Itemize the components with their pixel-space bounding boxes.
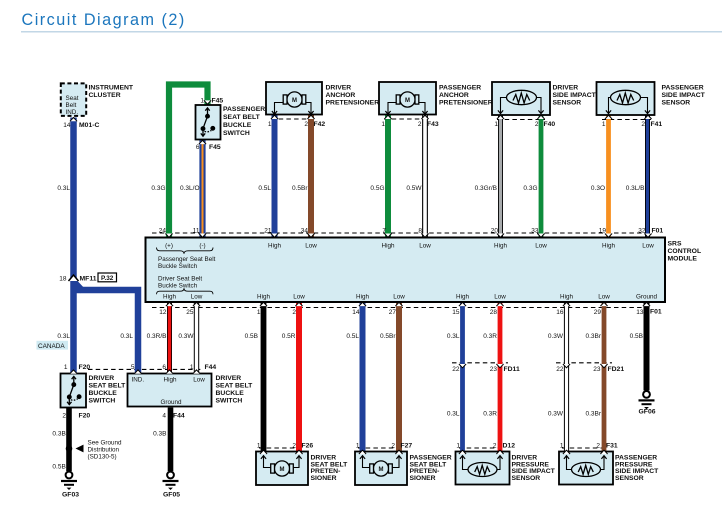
svg-text:High: High [257,293,270,300]
svg-text:0.3B: 0.3B [153,431,166,438]
svg-text:2: 2 [62,413,66,420]
svg-text:F27: F27 [401,442,413,449]
svg-text:8: 8 [418,228,422,235]
svg-text:2: 2 [292,442,296,449]
svg-text:MF11: MF11 [80,276,97,283]
svg-text:GF06: GF06 [639,409,656,416]
svg-text:SWITCH: SWITCH [216,398,243,405]
svg-text:29: 29 [594,309,602,316]
svg-text:High: High [456,293,469,300]
svg-text:15: 15 [452,309,460,316]
svg-text:0.3G: 0.3G [523,185,537,192]
svg-text:19: 19 [599,228,607,235]
svg-text:M: M [280,467,285,473]
svg-text:SEAT BELT: SEAT BELT [223,114,261,121]
svg-text:ANCHOR: ANCHOR [439,92,469,99]
svg-text:Ground: Ground [636,293,658,300]
svg-text:0.3L: 0.3L [57,185,70,192]
svg-text:IND.: IND. [66,109,79,116]
svg-text:SIDE IMPACT: SIDE IMPACT [662,92,706,99]
svg-text:Buckle Switch: Buckle Switch [158,283,198,290]
svg-text:F43: F43 [427,121,439,128]
svg-text:1: 1 [257,442,261,449]
svg-text:1: 1 [381,121,385,128]
svg-text:Belt: Belt [66,102,77,109]
svg-text:SIDE IMPACT: SIDE IMPACT [553,92,597,99]
svg-text:SEAT BELT: SEAT BELT [89,383,127,390]
svg-text:0.5B: 0.5B [52,464,65,471]
svg-text:M01-C: M01-C [79,122,99,129]
svg-text:BUCKLE: BUCKLE [89,390,118,397]
svg-text:0.3L: 0.3L [447,411,460,418]
svg-text:0.3L: 0.3L [447,333,460,340]
svg-text:High: High [164,376,177,383]
svg-text:Ground: Ground [160,399,182,406]
svg-text:0.3R: 0.3R [483,333,497,340]
svg-text:SIONER: SIONER [311,475,337,482]
svg-text:0.3Gr/B: 0.3Gr/B [475,185,497,192]
svg-text:F26: F26 [302,442,314,449]
svg-text:0.5G: 0.5G [370,185,384,192]
svg-text:PASSENGER: PASSENGER [662,85,704,92]
svg-text:21: 21 [264,228,272,235]
svg-text:High: High [356,293,369,300]
svg-text:F01: F01 [652,228,664,235]
svg-text:Passenger Seat Belt: Passenger Seat Belt [158,256,216,263]
svg-text:FD21: FD21 [608,366,625,373]
svg-text:Low: Low [305,242,317,249]
svg-text:0.5Br: 0.5Br [292,185,308,192]
svg-text:F31: F31 [606,442,618,449]
svg-text:SENSOR: SENSOR [553,100,582,107]
svg-text:18: 18 [59,276,67,283]
svg-text:SENSOR: SENSOR [662,100,691,107]
svg-text:Low: Low [494,293,506,300]
svg-text:Low: Low [642,242,654,249]
svg-text:SWITCH: SWITCH [89,398,116,405]
svg-text:0.3B: 0.3B [52,431,65,438]
svg-text:DRIVER: DRIVER [553,85,579,92]
svg-text:2: 2 [596,442,600,449]
svg-text:0.3O: 0.3O [591,185,605,192]
svg-text:High: High [494,242,507,249]
svg-text:0.3L/B: 0.3L/B [626,185,645,192]
svg-text:22: 22 [556,366,564,373]
svg-text:2: 2 [304,121,308,128]
svg-text:1: 1 [64,364,68,371]
svg-text:2: 2 [292,309,296,316]
svg-text:Low: Low [193,376,205,383]
svg-text:1: 1 [494,121,498,128]
svg-text:Low: Low [598,293,610,300]
svg-text:23: 23 [490,366,498,373]
svg-text:High: High [602,242,615,249]
svg-text:32: 32 [638,228,646,235]
svg-text:Seat: Seat [66,95,79,102]
svg-text:PASSENGER: PASSENGER [223,106,265,113]
svg-text:0.3W: 0.3W [178,333,194,340]
svg-text:25: 25 [186,309,194,316]
svg-text:SENSOR: SENSOR [615,475,644,482]
svg-text:CONTROL: CONTROL [668,248,702,255]
svg-text:Buckle Switch: Buckle Switch [158,263,198,270]
svg-text:Driver Seat Belt: Driver Seat Belt [158,276,202,283]
svg-text:Distribution: Distribution [88,447,120,454]
svg-text:4: 4 [162,413,166,420]
svg-text:0.5L: 0.5L [258,185,271,192]
svg-text:7: 7 [382,228,386,235]
svg-text:2: 2 [493,442,497,449]
svg-text:(-): (-) [199,242,205,249]
svg-text:0.5R: 0.5R [282,333,296,340]
svg-text:0.5L: 0.5L [346,333,359,340]
svg-text:IND.: IND. [132,376,145,383]
svg-text:DRIVER: DRIVER [326,85,352,92]
svg-text:High: High [560,293,573,300]
svg-text:M: M [292,98,297,104]
svg-text:1: 1 [257,309,261,316]
svg-text:5: 5 [131,364,135,371]
svg-text:SIONER: SIONER [410,475,436,482]
svg-text:1: 1 [456,442,460,449]
svg-text:MODULE: MODULE [668,255,698,262]
svg-text:F42: F42 [314,121,326,128]
svg-text:M: M [405,98,410,104]
svg-text:14: 14 [63,122,71,129]
svg-text:0.3W: 0.3W [548,333,564,340]
svg-text:0.3L: 0.3L [120,333,133,340]
svg-text:28: 28 [490,309,498,316]
svg-text:High: High [382,242,395,249]
svg-text:F40: F40 [544,121,556,128]
svg-text:Low: Low [535,242,547,249]
svg-text:PRETENSIONER: PRETENSIONER [326,100,380,107]
svg-text:0.5Br: 0.5Br [380,333,396,340]
svg-text:20: 20 [491,228,499,235]
svg-text:1: 1 [356,442,360,449]
svg-text:1: 1 [268,121,272,128]
svg-text:F45: F45 [212,98,224,105]
svg-text:SRS: SRS [668,240,682,247]
svg-text:2: 2 [391,442,395,449]
svg-text:16: 16 [556,309,564,316]
svg-text:CLUSTER: CLUSTER [89,92,121,99]
svg-text:23: 23 [593,366,601,373]
svg-text:See Ground: See Ground [88,440,122,447]
svg-text:Low: Low [191,293,203,300]
svg-text:High: High [163,293,176,300]
svg-text:0.5B: 0.5B [630,333,643,340]
svg-text:0.5B: 0.5B [245,333,258,340]
svg-text:1: 1 [200,98,204,105]
svg-text:11: 11 [193,228,200,235]
svg-text:0.3Br: 0.3Br [585,411,601,418]
svg-text:F41: F41 [651,121,663,128]
svg-text:Circuit Diagram (2): Circuit Diagram (2) [22,11,186,29]
svg-text:GF05: GF05 [163,492,180,499]
svg-text:1: 1 [190,364,194,371]
svg-text:33: 33 [531,228,539,235]
svg-text:SEAT BELT: SEAT BELT [216,383,254,390]
svg-text:M: M [379,467,384,473]
svg-text:GF03: GF03 [62,492,79,499]
svg-text:24: 24 [159,228,167,235]
svg-text:SWITCH: SWITCH [223,130,250,137]
svg-text:34: 34 [301,228,309,235]
svg-text:2: 2 [535,121,539,128]
svg-text:12: 12 [159,309,167,316]
svg-text:CANADA: CANADA [38,343,65,350]
svg-text:(SD130-5): (SD130-5) [88,454,117,461]
svg-text:PRETENSIONER: PRETENSIONER [439,100,493,107]
svg-text:F44: F44 [205,364,217,371]
svg-text:F01: F01 [650,309,662,316]
svg-text:High: High [268,242,281,249]
svg-text:DRIVER: DRIVER [216,375,242,382]
svg-text:Low: Low [293,293,305,300]
svg-text:DRIVER: DRIVER [89,375,115,382]
svg-text:Low: Low [393,293,405,300]
svg-text:SENSOR: SENSOR [512,475,541,482]
svg-text:FD11: FD11 [504,366,520,373]
svg-text:2: 2 [641,121,645,128]
svg-text:27: 27 [389,309,397,316]
svg-text:0.5W: 0.5W [406,185,422,192]
svg-text:Low: Low [419,242,431,249]
svg-text:0.3G: 0.3G [151,185,165,192]
svg-text:INSTRUMENT: INSTRUMENT [89,85,134,92]
svg-text:PASSENGER: PASSENGER [439,85,481,92]
svg-text:2: 2 [418,121,422,128]
svg-text:6: 6 [196,144,200,151]
svg-text:0.3L: 0.3L [57,333,70,340]
svg-text:1: 1 [560,442,564,449]
svg-text:0.3R: 0.3R [483,411,497,418]
svg-text:ANCHOR: ANCHOR [326,92,356,99]
svg-text:0.3W: 0.3W [548,411,564,418]
svg-text:F20: F20 [79,413,91,420]
svg-text:BUCKLE: BUCKLE [216,390,245,397]
svg-text:0.3R/B: 0.3R/B [147,333,167,340]
svg-text:P.32: P.32 [101,275,114,282]
svg-text:F44: F44 [173,413,185,420]
svg-text:0.3Br: 0.3Br [585,333,601,340]
svg-text:D12: D12 [503,442,516,449]
svg-text:BUCKLE: BUCKLE [223,122,252,129]
svg-text:1: 1 [602,121,606,128]
svg-text:22: 22 [452,366,460,373]
svg-text:13: 13 [636,309,644,316]
svg-text:14: 14 [352,309,360,316]
svg-text:F45: F45 [209,144,221,151]
svg-text:F20: F20 [79,364,91,371]
svg-text:6: 6 [162,364,166,371]
svg-text:(+): (+) [165,242,173,249]
svg-text:0.3L/O: 0.3L/O [180,185,200,192]
